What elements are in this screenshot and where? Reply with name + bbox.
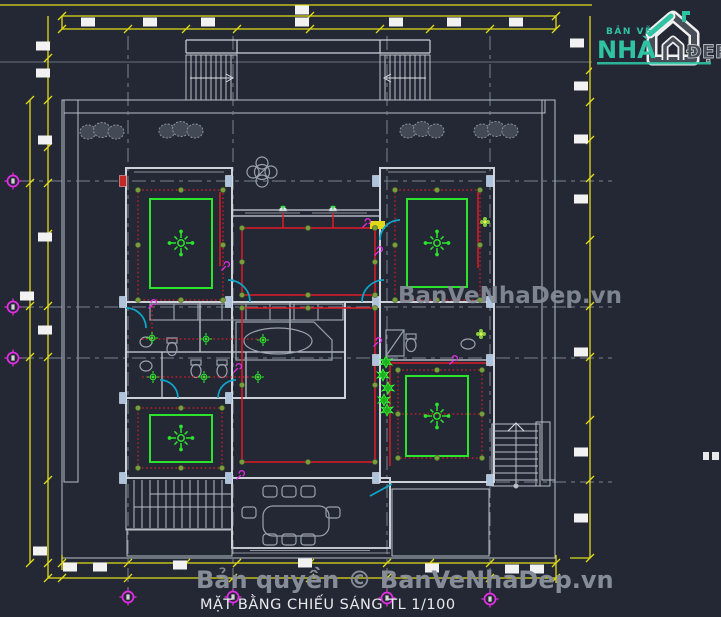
cad-viewport[interactable]: BanVeNhaDep.vn Bản quyền © BanVeNhaDep.v… (0, 0, 721, 617)
floor-plan-drawing: BanVeNhaDep.vn Bản quyền © BanVeNhaDep.v… (0, 0, 721, 617)
logo-name-right: ĐẸP (686, 41, 721, 63)
site-logo: BẢN VẼ NHÀ ĐẸP (592, 0, 721, 72)
logo-name-left: NHÀ (597, 35, 656, 64)
plan-title: MẶT BẰNG CHIẾU SÁNG TL 1/100 (200, 594, 456, 613)
copyright-watermark: Bản quyền © BanVeNhaDep.vn (196, 566, 614, 594)
columns-red (120, 176, 127, 187)
center-watermark: BanVeNhaDep.vn (398, 283, 622, 309)
